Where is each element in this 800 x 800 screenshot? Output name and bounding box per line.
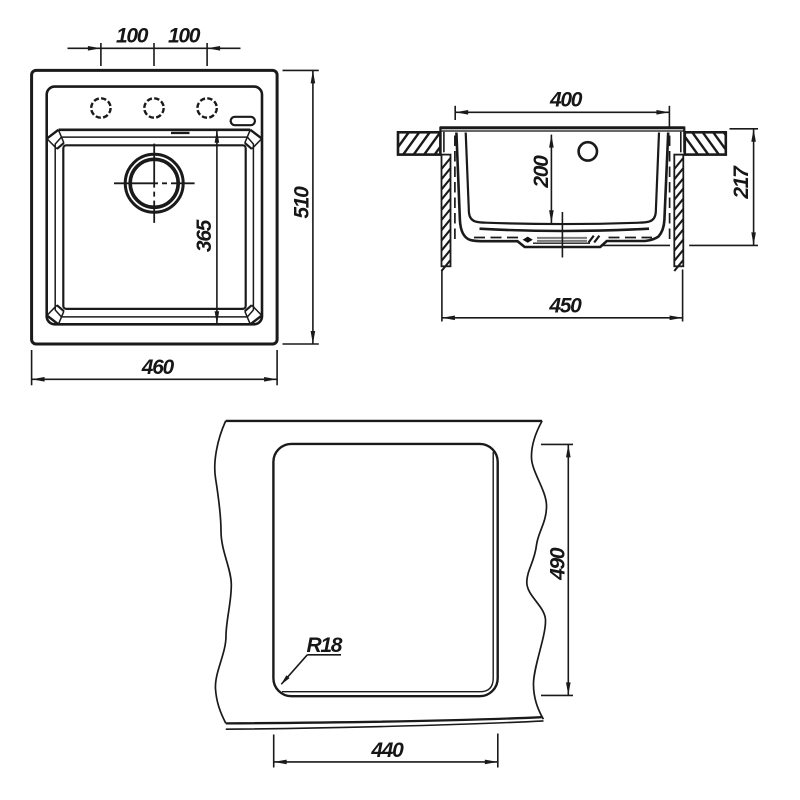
svg-text:460: 460 <box>141 356 175 379</box>
svg-text:510: 510 <box>290 186 313 219</box>
svg-text:100: 100 <box>168 25 201 48</box>
svg-text:200: 200 <box>530 155 553 189</box>
svg-text:365: 365 <box>193 219 216 252</box>
svg-text:100: 100 <box>116 25 149 48</box>
svg-text:440: 440 <box>370 739 404 762</box>
svg-text:490: 490 <box>547 547 570 581</box>
svg-text:400: 400 <box>549 88 583 111</box>
svg-text:R18: R18 <box>306 634 342 657</box>
svg-text:217: 217 <box>730 165 753 200</box>
svg-text:450: 450 <box>548 295 582 318</box>
